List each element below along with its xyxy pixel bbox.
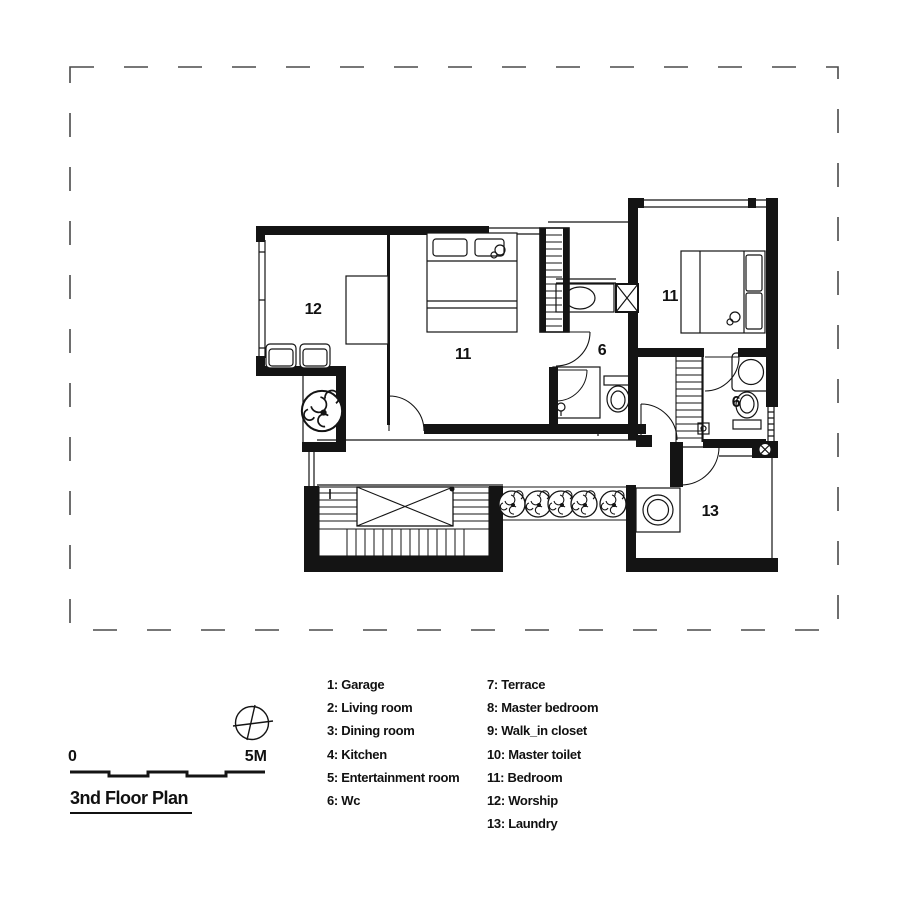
door-hall bbox=[641, 404, 677, 440]
floor-plan-drawing bbox=[0, 0, 920, 905]
sink-icon bbox=[739, 360, 764, 385]
plant-icon bbox=[525, 491, 551, 517]
legend-item: 9: Walk_in closet bbox=[487, 723, 598, 746]
legend-item: 2: Living room bbox=[327, 700, 459, 723]
floor-plan-page: 12 11 6 11 6 13 0 5M 3nd Floor Plan 1: G… bbox=[0, 0, 920, 905]
window-east-wc bbox=[768, 407, 774, 444]
room-label-bedroom-right: 11 bbox=[662, 288, 678, 306]
bed-right-bedroom bbox=[681, 251, 765, 333]
circle-x-shaft-icon bbox=[752, 441, 778, 458]
scale-bar bbox=[70, 772, 265, 776]
laundry-thin-walls bbox=[683, 447, 772, 558]
legend-item: 13: Laundry bbox=[487, 816, 598, 839]
x-column-icon bbox=[616, 284, 638, 312]
chairs-worship bbox=[266, 344, 330, 368]
door-laundry bbox=[681, 447, 719, 485]
legend-item: 12: Worship bbox=[487, 793, 598, 816]
page-title: 3nd Floor Plan bbox=[70, 788, 192, 814]
legend-item: 8: Master bedroom bbox=[487, 700, 598, 723]
room-label-wc-right: 6 bbox=[732, 394, 740, 412]
legend-item: 7: Terrace bbox=[487, 677, 598, 700]
toilet-icon bbox=[607, 386, 629, 412]
room-label-worship: 12 bbox=[305, 301, 322, 319]
plant-icon bbox=[600, 491, 626, 517]
plant-icon bbox=[571, 491, 597, 517]
door-bedroom-left bbox=[389, 396, 424, 431]
shower-valve-icon bbox=[557, 403, 565, 411]
legend-item: 1: Garage bbox=[327, 677, 459, 700]
room-label-laundry: 13 bbox=[702, 503, 719, 521]
room-label-wc-middle: 6 bbox=[598, 342, 606, 360]
sink-counter bbox=[732, 353, 770, 391]
plant-icon bbox=[548, 491, 574, 517]
toilet-tank bbox=[604, 376, 632, 385]
window-west-worship bbox=[259, 240, 265, 358]
legend-item: 6: Wc bbox=[327, 793, 459, 816]
door-wc-middle bbox=[556, 332, 590, 366]
legend-item: 3: Dining room bbox=[327, 723, 459, 746]
scale-end-label: 5M bbox=[237, 748, 267, 766]
corridor-edges bbox=[317, 440, 636, 485]
legend-column-1: 1: Garage 2: Living room 3: Dining room … bbox=[327, 677, 459, 816]
legend-item: 11: Bedroom bbox=[487, 770, 598, 793]
closet-left-bedroom bbox=[346, 276, 388, 344]
toilet-tank bbox=[733, 420, 761, 429]
planter-shelf bbox=[499, 487, 630, 520]
room-label-bedroom-left: 11 bbox=[455, 346, 471, 364]
window-top-bedroom-right bbox=[638, 200, 766, 207]
legend-item: 5: Entertainment room bbox=[327, 770, 459, 793]
compass-icon bbox=[233, 705, 273, 740]
legend-item: 4: Kitchen bbox=[327, 747, 459, 770]
scale-start-label: 0 bbox=[68, 748, 77, 766]
site-boundary-dashed bbox=[70, 67, 838, 630]
legend-item: 10: Master toilet bbox=[487, 747, 598, 770]
legend-column-2: 7: Terrace 8: Master bedroom 9: Walk_in … bbox=[487, 677, 598, 839]
main-staircase bbox=[319, 487, 489, 557]
plant-icon bbox=[302, 391, 342, 432]
door-wc-right bbox=[705, 357, 739, 391]
plant-icon bbox=[499, 491, 525, 517]
bed-left-bedroom bbox=[427, 233, 517, 332]
washing-machine-icon bbox=[636, 488, 680, 532]
door-shower bbox=[556, 370, 587, 401]
